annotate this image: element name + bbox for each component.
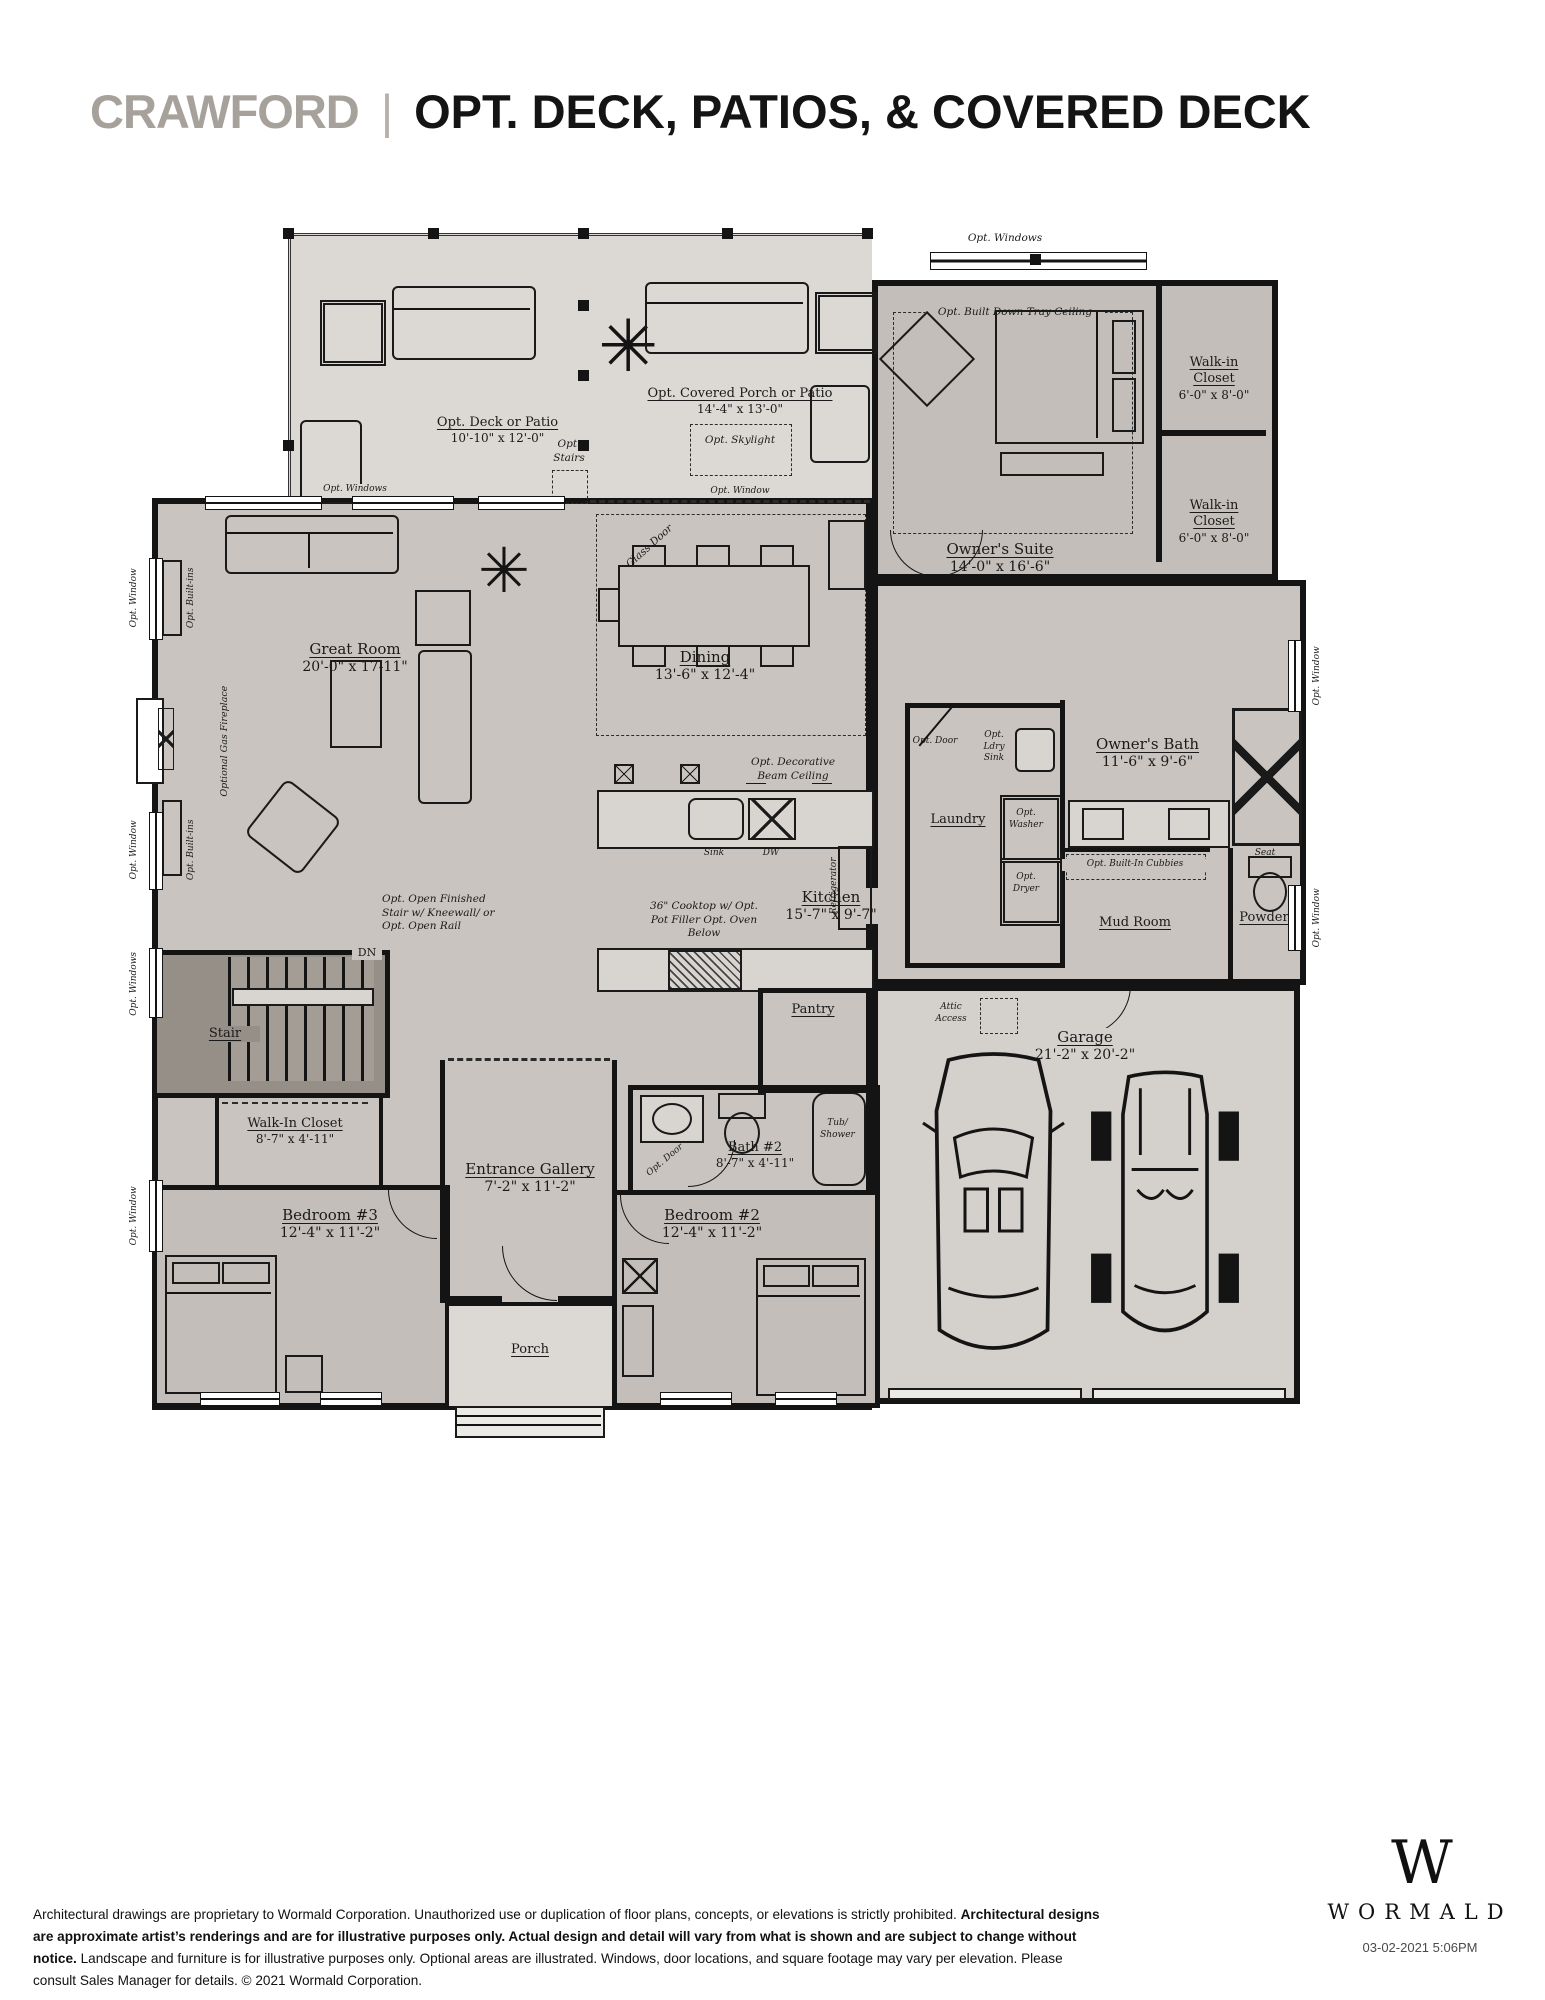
opt-window-label: Opt. Window (129, 1176, 141, 1256)
dw-label: DW (756, 848, 786, 860)
porch-post (862, 228, 873, 239)
coffee-table (330, 660, 382, 748)
dining-table (618, 565, 810, 647)
bath2-sink (652, 1103, 692, 1135)
bedroom2-dresser (622, 1305, 654, 1377)
print-timestamp: 03-02-2021 5:06PM (1300, 1940, 1540, 1955)
firebox (158, 708, 174, 770)
disclaimer-part2: Landscape and furniture is for illustrat… (33, 1951, 1063, 1988)
deck-label: Opt. Deck or Patio 10'-10" x 12'-0" (435, 415, 560, 446)
stool (614, 764, 634, 784)
kitchen-sink (688, 798, 744, 840)
plan-name: CRAWFORD (90, 85, 359, 138)
attic-access-label: Attic Access (930, 1002, 972, 1025)
stool (680, 764, 700, 784)
sofa-back-line (394, 308, 530, 310)
bed-pillow (1112, 378, 1136, 432)
cooktop-label: 36" Cooktop w/ Opt. Pot Filler Opt. Oven… (648, 900, 760, 941)
walkin-closet-c-label: Walk-In Closet 8'-7" x 4'-11" (215, 1116, 375, 1147)
bath-wall (1060, 700, 1065, 848)
bed-pillow (172, 1262, 220, 1284)
bed-pillow (1112, 320, 1136, 374)
dining-chair (760, 545, 794, 567)
bed-cover-line (758, 1295, 860, 1297)
right-window (1288, 640, 1302, 712)
walkin-closet-a-label: Walk-in Closet 6'-0" x 8'-0" (1168, 355, 1260, 403)
skylight-label: Opt. Skylight (700, 434, 780, 448)
great-room-window (352, 496, 454, 510)
porch-side-table (815, 292, 877, 354)
deck-post (428, 228, 439, 239)
cooktop (668, 950, 742, 990)
deck-post (578, 228, 589, 239)
deck-table (320, 300, 386, 366)
dining-chair (760, 645, 794, 667)
floor-plan-sheet: CRAWFORD | OPT. DECK, PATIOS, & COVERED … (0, 0, 1545, 2000)
mudroom-wall (1060, 848, 1210, 852)
open-stair-note: Opt. Open Finished Stair w/ Kneewall/ or… (382, 893, 502, 934)
opt-windows-label: Opt. Windows (129, 944, 141, 1024)
gas-fireplace-label: Optional Gas Fireplace (219, 676, 231, 806)
plan-option-title: OPT. DECK, PATIOS, & COVERED DECK (414, 85, 1311, 138)
refrigerator-label: Refrigerator (829, 846, 841, 926)
car-classic (1085, 1068, 1245, 1358)
refrigerator-box (838, 846, 872, 930)
plant-icon: ✳ (478, 540, 530, 602)
opt-window-label: Opt. Window (129, 810, 141, 890)
opt-window-label: Opt. Window (1312, 878, 1324, 958)
opt-built-ins-label: Opt. Built-ins (186, 810, 198, 890)
sink-label: Sink (694, 848, 734, 860)
owners-bath-label: Owner's Bath 11'-6" x 9'-6" (1080, 735, 1215, 771)
porch-opt-window-label: Opt. Window (700, 486, 780, 498)
bed-pillow (812, 1265, 859, 1287)
opt-ldry-sink-label: Opt. Ldry Sink (975, 730, 1013, 765)
gallery-wall (440, 1060, 445, 1303)
opt-built-ins-label: Opt. Built-ins (186, 558, 198, 638)
deck-opt-windows-label: Opt. Windows (315, 484, 395, 496)
chase (622, 1258, 658, 1294)
disclaimer-part1: Architectural drawings are proprietary t… (33, 1907, 961, 1922)
dining-chair (632, 645, 666, 667)
porch-step-line (455, 1424, 601, 1426)
left-window (149, 558, 163, 640)
cubbies-label: Opt. Built-In Cubbies (1062, 859, 1208, 871)
glass-door-wall (590, 500, 870, 503)
garage-door (888, 1388, 1082, 1400)
side-table (415, 590, 471, 646)
deck-sofa (392, 286, 536, 360)
great-room-window (205, 496, 322, 510)
closet-divider-wall (1162, 430, 1266, 436)
dn-label: DN (352, 946, 382, 960)
car-sports (916, 1045, 1071, 1375)
bed-pillow (763, 1265, 810, 1287)
mud-room-label: Mud Room (1095, 915, 1175, 931)
left-window (149, 1180, 163, 1252)
dishwasher (748, 798, 796, 840)
stair-rail (232, 988, 374, 1006)
bedroom3-window (200, 1392, 280, 1406)
opt-dryer-label: Opt. Dryer (1002, 872, 1050, 895)
laundry-label: Laundry (918, 812, 998, 828)
sofa-cushion-line (308, 534, 310, 568)
built-in-shelf (162, 800, 182, 876)
porch-step-line (455, 1415, 601, 1417)
dining-chair (696, 645, 730, 667)
opt-window-label: Opt. Window (1312, 636, 1324, 716)
stair-treads (228, 957, 374, 1081)
deck-post (578, 300, 589, 311)
closet-wall (1156, 286, 1162, 562)
porch-sofa (645, 282, 809, 354)
skylight-outline (690, 424, 792, 476)
owners-suite-label: Owner's Suite 14'-0" x 16'-6" (920, 540, 1080, 576)
dining-chair (696, 545, 730, 567)
left-window (149, 812, 163, 890)
sofa-back-line (647, 302, 803, 304)
stair-label: Stair (190, 1026, 260, 1042)
chaise-sofa (418, 650, 472, 804)
bed-cover-line (1096, 312, 1098, 438)
deck-post (283, 440, 294, 451)
window-mullion (1030, 254, 1041, 265)
closet-shelf (222, 1102, 368, 1104)
bed-bench (1000, 452, 1104, 476)
sofa-back-line (227, 532, 393, 534)
shower (1232, 708, 1302, 846)
bedroom3-window (320, 1392, 382, 1406)
opt-washer-label: Opt. Washer (1002, 808, 1050, 831)
opt-windows-top-label: Opt. Windows (955, 232, 1055, 246)
laundry-sink (1015, 728, 1055, 772)
porch-label: Porch (480, 1342, 580, 1358)
opt-stairs-label: Opt. Stairs (548, 438, 590, 465)
dining-chair (632, 545, 666, 567)
bed-cover-line (167, 1292, 271, 1294)
page-title: CRAWFORD | OPT. DECK, PATIOS, & COVERED … (90, 84, 1311, 139)
bedroom2-window (775, 1392, 837, 1406)
walkin-closet-b-label: Walk-in Closet 6'-0" x 8'-0" (1168, 498, 1260, 546)
built-in-shelf (162, 560, 182, 636)
porch-steps (455, 1406, 605, 1438)
dining-chair (598, 588, 620, 622)
left-window (149, 948, 163, 1018)
pantry-label: Pantry (768, 1002, 858, 1018)
great-room-sofa (225, 515, 399, 574)
bedroom3-label: Bedroom #3 12'-4" x 11'-2" (255, 1206, 405, 1242)
disclaimer-text: Architectural drawings are proprietary t… (33, 1904, 1108, 1992)
dining-buffet (828, 520, 866, 590)
attic-access-hatch (980, 998, 1018, 1034)
wormald-monogram: W (1372, 1828, 1472, 1898)
vanity-sink (1082, 808, 1124, 840)
covered-porch-label: Opt. Covered Porch or Patio 14'-4" x 13'… (640, 386, 840, 417)
title-separator: | (381, 85, 392, 138)
deck-post (578, 370, 589, 381)
vanity-sink (1168, 808, 1210, 840)
garage-door (1092, 1388, 1286, 1400)
beam-ceiling-label: Opt. Decorative Beam Ceiling (745, 756, 841, 783)
entrance-gallery-label: Entrance Gallery 7'-2" x 11'-2" (455, 1160, 605, 1196)
porch-post (722, 228, 733, 239)
wormald-logotype: WORMALD (1300, 1900, 1540, 1924)
opt-window-label: Opt. Window (129, 558, 141, 638)
great-room-window (478, 496, 565, 510)
bed-pillow (222, 1262, 270, 1284)
bedroom2-window (660, 1392, 732, 1406)
powder-toilet-bowl (1253, 872, 1287, 912)
gallery-opening (448, 1058, 610, 1061)
nightstand (285, 1355, 323, 1393)
right-window (1288, 885, 1302, 951)
tub-shower-label: Tub/ Shower (815, 1118, 860, 1141)
deck-post (283, 228, 294, 239)
